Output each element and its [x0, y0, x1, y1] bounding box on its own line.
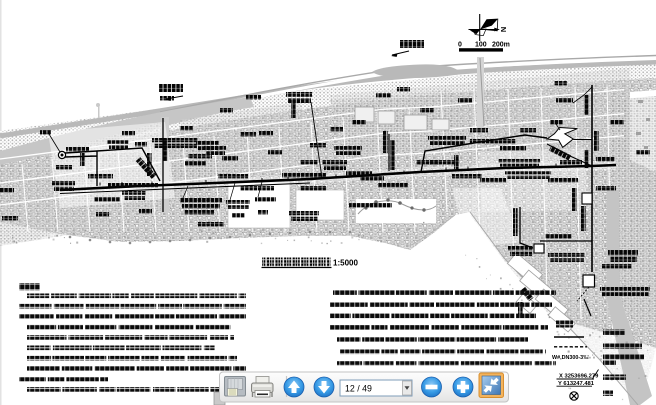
svg-text:12 / 49: 12 / 49 — [345, 384, 372, 394]
